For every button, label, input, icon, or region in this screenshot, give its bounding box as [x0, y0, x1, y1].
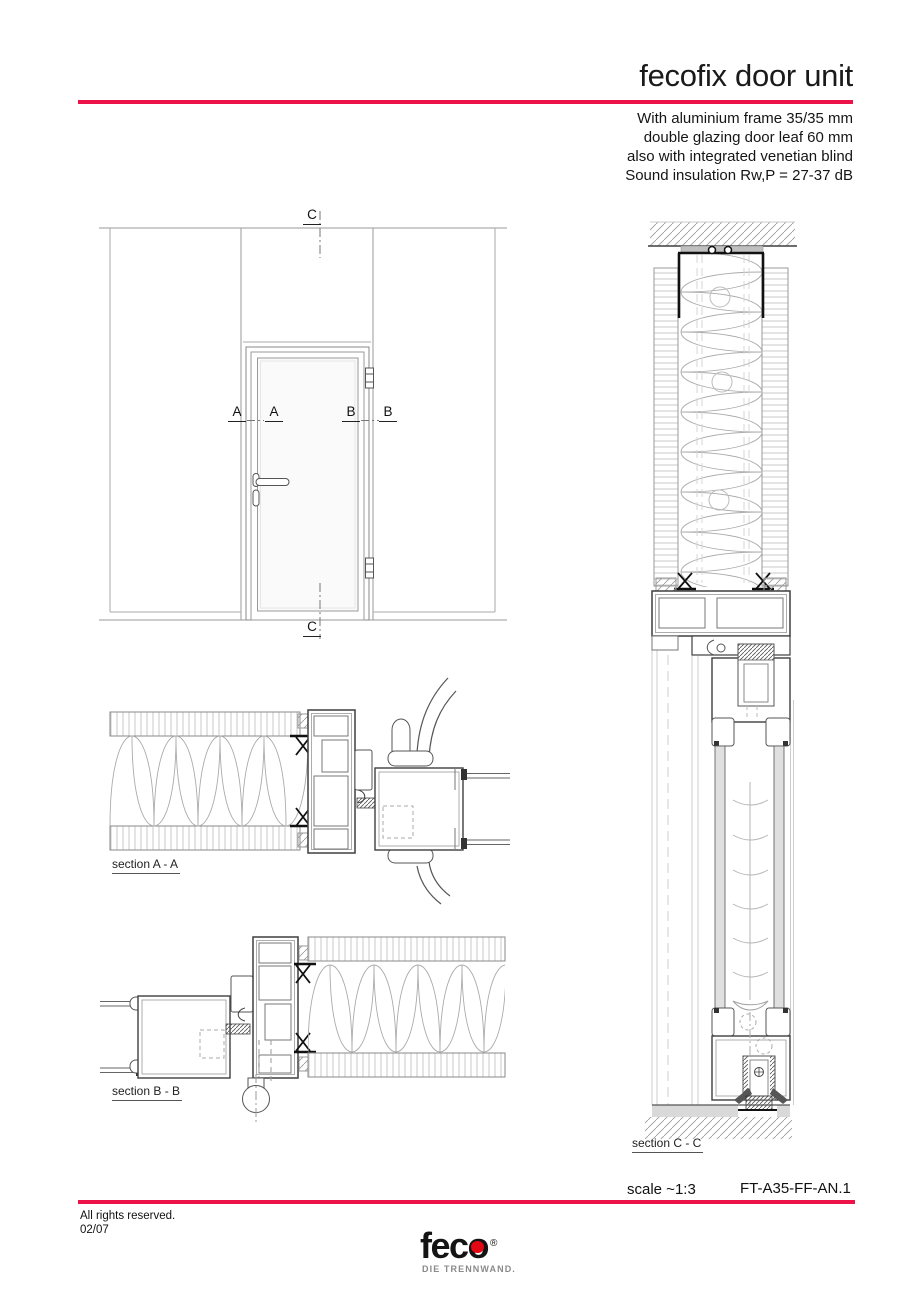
datasheet-page: fecofix door unit With aluminium frame 3… [0, 0, 919, 1301]
feco-logo: feco® [420, 1228, 488, 1264]
section-marker-b-left: B [342, 404, 360, 422]
drawing-number: FT-A35-FF-AN.1 [740, 1180, 851, 1197]
registered-trademark-icon: ® [490, 1226, 497, 1262]
section-b-label-wrap: section B - B [112, 1082, 182, 1100]
section-a-label: section A - A [112, 857, 180, 874]
wall-panel-a [110, 712, 312, 850]
section-a-label-wrap: section A - A [112, 855, 180, 873]
section-c-drawing [645, 222, 797, 1139]
rights-text: All rights reserved. [80, 1209, 175, 1223]
wall-column-c [654, 247, 788, 613]
feco-logo-red-dot-icon [471, 1241, 484, 1254]
section-marker-a-left: A [228, 404, 246, 422]
section-marker-c-top: C [303, 207, 321, 225]
door-leaf-a [375, 678, 463, 904]
scale-label: scale ~1:3 [627, 1181, 696, 1198]
accent-rule-bottom [78, 1200, 855, 1204]
frame-profile-a [308, 710, 380, 853]
door-elevation-drawing [99, 211, 507, 639]
section-marker-a-right: A [265, 404, 283, 422]
section-c-label-wrap: section C - C [632, 1134, 703, 1152]
leaf-top-rail-c [712, 644, 790, 746]
frame-profile-b [231, 937, 298, 1078]
venetian-blind-c [733, 782, 768, 1010]
section-marker-b-right: B [379, 404, 397, 422]
ceiling-c [648, 222, 797, 253]
technical-drawings [0, 0, 919, 1301]
section-marker-c-bottom: C [303, 619, 321, 637]
section-c-label: section C - C [632, 1136, 703, 1153]
wall-panel-b [294, 937, 528, 1077]
section-b-label: section B - B [112, 1084, 182, 1101]
date-text: 02/07 [80, 1224, 109, 1236]
glazing-a [461, 769, 510, 849]
feco-tagline: DIE TRENNWAND. [422, 1264, 516, 1274]
